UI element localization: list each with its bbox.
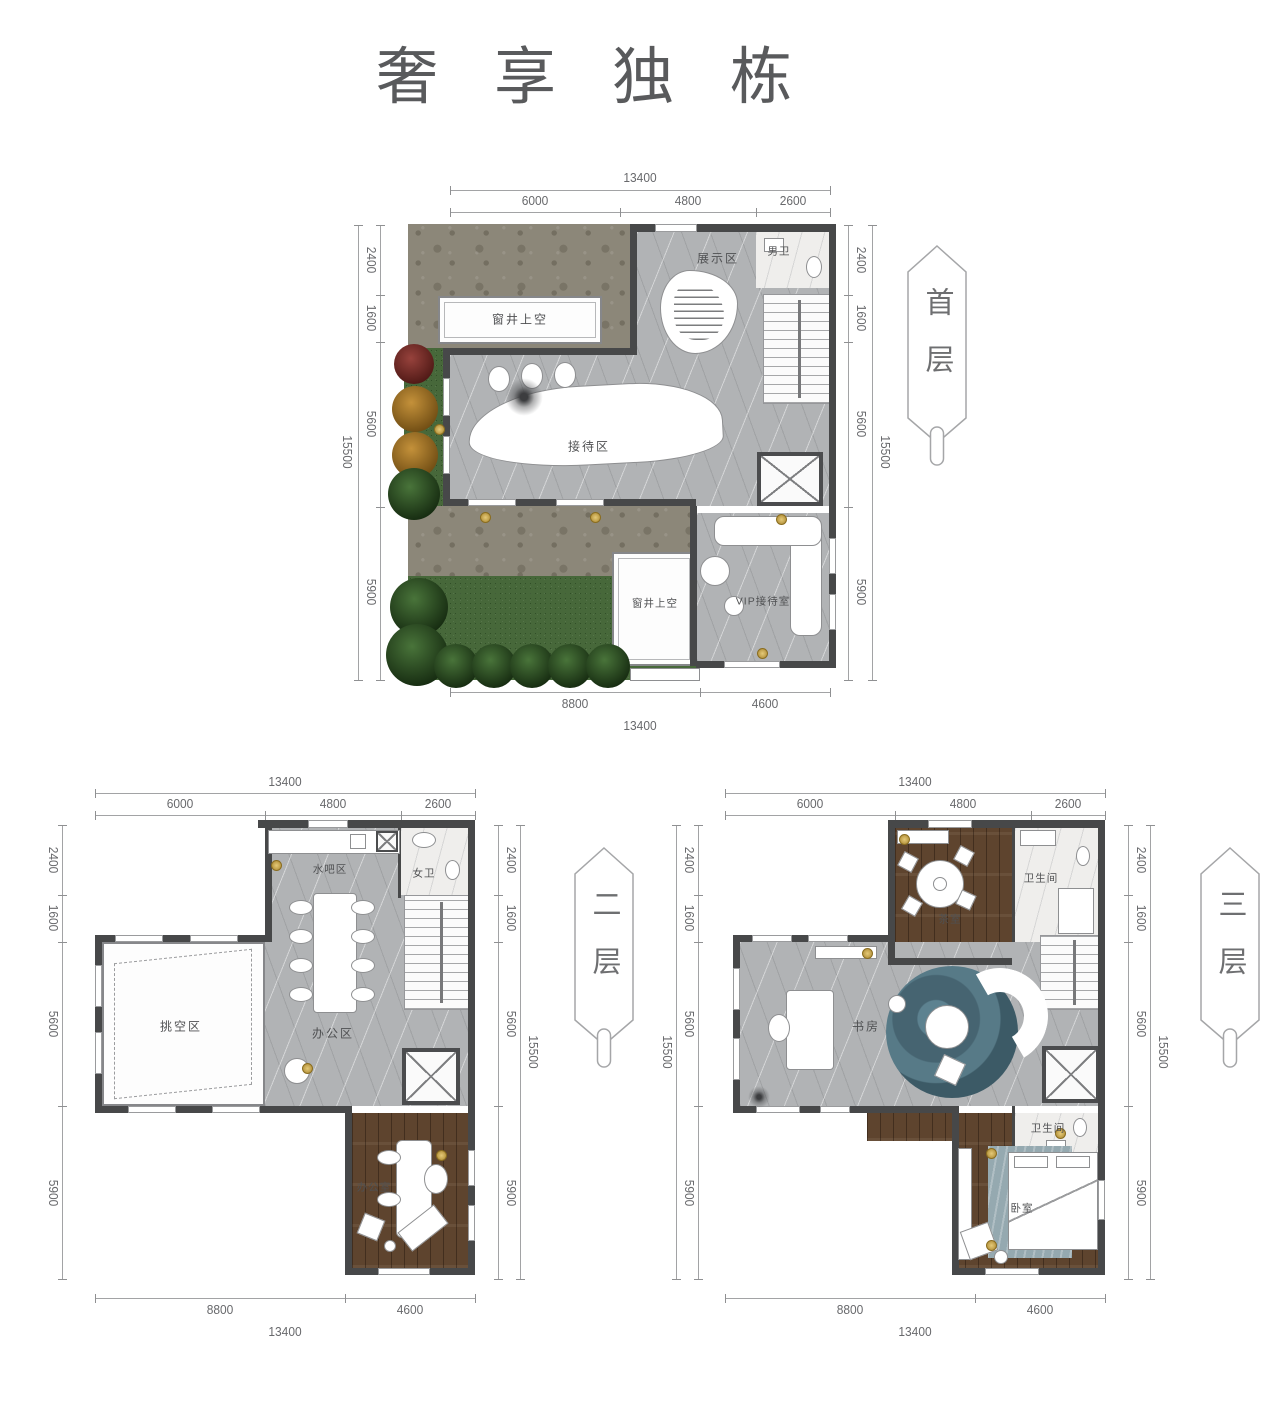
window — [808, 935, 848, 942]
window — [724, 661, 780, 668]
chair — [289, 987, 313, 1002]
dim-label: 2400 — [854, 247, 869, 274]
staircase — [404, 895, 475, 1010]
dim-label: 4600 — [1027, 1302, 1054, 1317]
wall — [630, 224, 637, 355]
dim-label: 5600 — [854, 411, 869, 438]
room-label: 展示区 — [697, 250, 739, 267]
chair — [289, 929, 313, 944]
dim-label: 13400 — [623, 718, 656, 733]
wall — [888, 958, 1012, 965]
room-label: 女卫 — [413, 866, 436, 881]
dim-line — [380, 225, 381, 680]
dim-line — [95, 815, 475, 816]
dim-line — [698, 825, 699, 1279]
dim-label: 5600 — [682, 1011, 697, 1038]
room-label: 水吧区 — [313, 862, 348, 877]
tree — [388, 468, 440, 520]
window — [928, 820, 972, 828]
dim-label: 13400 — [898, 774, 931, 789]
sink — [412, 832, 436, 848]
stool — [384, 1240, 396, 1252]
chair — [351, 929, 375, 944]
dim-line — [725, 815, 1105, 816]
dim-line — [848, 225, 849, 680]
sink — [350, 834, 366, 849]
room-label: 男卫 — [768, 244, 791, 259]
dim-line — [676, 825, 677, 1279]
wall — [829, 506, 836, 668]
dim-label: 2400 — [504, 847, 519, 874]
dim-label: 15500 — [526, 1035, 541, 1068]
dim-label: 8800 — [562, 696, 589, 711]
window — [733, 1038, 740, 1080]
dim-label: 4800 — [675, 193, 702, 208]
window — [829, 594, 836, 630]
chair — [351, 958, 375, 973]
dim-label: 1600 — [504, 905, 519, 932]
side-table — [888, 995, 906, 1013]
chair — [289, 958, 313, 973]
dim-label: 1600 — [854, 305, 869, 332]
room-label: 卧室 — [1011, 1201, 1034, 1216]
partition — [1012, 820, 1015, 942]
bush — [586, 644, 630, 688]
window — [468, 499, 516, 506]
elevator — [1042, 1046, 1100, 1103]
dim-line — [725, 1298, 1105, 1299]
wall — [345, 1106, 352, 1275]
plant — [748, 1086, 770, 1108]
dim-label: 15500 — [340, 435, 355, 468]
fixture-marker — [590, 512, 601, 523]
window — [468, 1205, 475, 1241]
dim-line — [95, 793, 475, 794]
dim-label: 13400 — [898, 1324, 931, 1339]
dim-line — [498, 825, 499, 1279]
dim-label: 5900 — [682, 1180, 697, 1207]
dim-label: 13400 — [623, 170, 656, 185]
tree — [394, 344, 434, 384]
dim-label: 2600 — [780, 193, 807, 208]
dim-label: 2400 — [1134, 847, 1149, 874]
window — [443, 436, 450, 474]
dim-label: 4800 — [950, 796, 977, 811]
room-label: 卫生间 — [1031, 1121, 1066, 1136]
fixture-marker — [436, 1150, 447, 1161]
side-table — [700, 556, 730, 586]
dim-label: 8800 — [207, 1302, 234, 1317]
dim-label: 4600 — [752, 696, 779, 711]
dim-line — [450, 212, 830, 213]
dim-label: 5600 — [364, 411, 379, 438]
dim-label: 13400 — [268, 774, 301, 789]
dim-label: 6000 — [167, 796, 194, 811]
room-label: VIP接待室 — [736, 594, 790, 609]
window — [95, 965, 102, 1007]
dim-label: 2600 — [425, 796, 452, 811]
room-label: 挑空区 — [160, 1018, 202, 1035]
shower — [1058, 888, 1094, 934]
window — [128, 1106, 176, 1113]
fixture-marker — [757, 648, 768, 659]
window — [829, 538, 836, 574]
office-chair — [768, 1014, 790, 1042]
window — [985, 1268, 1039, 1275]
dim-label: 1600 — [46, 905, 61, 932]
fixture-marker — [986, 1148, 997, 1159]
room-label: 窗井上空 — [632, 596, 678, 611]
dim-label: 2400 — [364, 247, 379, 274]
fixture-marker — [271, 860, 282, 871]
dim-label: 5600 — [1134, 1011, 1149, 1038]
tree — [392, 386, 438, 432]
dim-label: 15500 — [878, 435, 893, 468]
dim-label: 15500 — [660, 1035, 675, 1068]
dim-label: 13400 — [268, 1324, 301, 1339]
dim-label: 4800 — [320, 796, 347, 811]
dim-line — [450, 692, 830, 693]
desk-plant — [505, 378, 543, 416]
cooktop — [376, 831, 398, 852]
chair — [289, 900, 313, 915]
floor-banner-label: 首层 — [905, 263, 969, 424]
fixture-marker — [480, 512, 491, 523]
round-table — [925, 1005, 969, 1049]
dim-label: 8800 — [837, 1302, 864, 1317]
dim-label: 15500 — [1156, 1035, 1171, 1068]
dim-line — [872, 225, 873, 680]
toilet — [445, 860, 460, 880]
window — [752, 935, 792, 942]
room-label: 书房 — [852, 1018, 880, 1035]
window — [468, 1150, 475, 1186]
corridor-floor — [867, 1113, 952, 1141]
wall — [95, 935, 102, 1113]
window — [308, 820, 348, 828]
fixture-marker — [862, 948, 873, 959]
dim-label: 1600 — [682, 905, 697, 932]
staircase — [1040, 935, 1105, 1010]
dim-label: 5900 — [1134, 1180, 1149, 1207]
dim-line — [1128, 825, 1129, 1279]
dim-label: 1600 — [1134, 905, 1149, 932]
toilet — [1073, 1118, 1087, 1137]
dim-label: 5900 — [46, 1180, 61, 1207]
stair-rail — [440, 902, 443, 1004]
window — [378, 1268, 430, 1275]
elevator — [757, 452, 823, 506]
office-chair — [424, 1164, 448, 1194]
chair — [351, 987, 375, 1002]
floor-banner: 三层 — [1198, 845, 1262, 1070]
fixture-marker — [434, 424, 445, 435]
dim-label: 2400 — [46, 847, 61, 874]
dim-line — [95, 1298, 475, 1299]
toilet — [806, 256, 822, 278]
dim-line — [520, 825, 521, 1279]
fixture-marker — [899, 834, 910, 845]
window — [115, 935, 163, 942]
chair — [351, 900, 375, 915]
entry-steps — [630, 668, 700, 681]
dim-line — [725, 793, 1105, 794]
dim-label: 6000 — [522, 193, 549, 208]
stool — [554, 362, 576, 388]
dim-label: 5900 — [854, 579, 869, 606]
staircase — [763, 294, 833, 404]
fixture-marker — [986, 1240, 997, 1251]
room-label: 办公室 — [357, 1180, 392, 1195]
dim-label: 1600 — [364, 305, 379, 332]
window — [655, 224, 697, 232]
wall — [443, 348, 636, 355]
dim-line — [358, 225, 359, 680]
dim-label: 2600 — [1055, 796, 1082, 811]
room-label: 接待区 — [568, 438, 610, 455]
dim-line — [1150, 825, 1151, 1279]
fixture-marker — [302, 1063, 313, 1074]
pillow — [1056, 1156, 1090, 1168]
floorplan-sheet: 奢享独栋 13400 6000 4800 2600 15500 2400 160… — [0, 0, 1280, 1406]
dim-label: 5900 — [504, 1180, 519, 1207]
page-title: 奢享独栋 — [0, 26, 1252, 116]
elevator — [402, 1048, 460, 1105]
room-label: 茶室 — [939, 912, 962, 927]
window — [733, 968, 740, 1010]
room-label: 办公区 — [312, 1025, 354, 1042]
guest-chair — [377, 1150, 401, 1165]
floor-banner: 二层 — [572, 845, 636, 1070]
study-desk — [786, 990, 834, 1070]
wall — [888, 820, 1105, 828]
wall — [733, 935, 740, 1113]
window — [556, 499, 604, 506]
fixture-marker — [776, 514, 787, 525]
dim-label: 5900 — [364, 579, 379, 606]
dim-label: 2400 — [682, 847, 697, 874]
wall — [258, 820, 475, 828]
stair-rail — [1073, 940, 1076, 1006]
window — [1098, 1180, 1105, 1220]
dim-line — [450, 190, 830, 191]
window — [95, 1032, 102, 1074]
window — [190, 935, 238, 942]
stool — [994, 1250, 1008, 1264]
dim-label: 5600 — [504, 1011, 519, 1038]
tea-table-center — [933, 877, 947, 891]
pillow — [1014, 1156, 1048, 1168]
dim-label: 6000 — [797, 796, 824, 811]
wall — [829, 224, 836, 506]
vip-sofa — [714, 516, 822, 546]
toilet — [1076, 846, 1090, 866]
dim-line — [62, 825, 63, 1279]
floor-banner-label: 二层 — [572, 865, 636, 1026]
room-label: 窗井上空 — [492, 311, 548, 328]
dim-label: 5600 — [46, 1011, 61, 1038]
dim-label: 4600 — [397, 1302, 424, 1317]
room-label: 卫生间 — [1024, 871, 1059, 886]
window — [212, 1106, 260, 1113]
floor-banner-label: 三层 — [1198, 865, 1262, 1026]
vanity — [1020, 830, 1056, 846]
window — [820, 1106, 850, 1113]
stair-rail — [798, 300, 801, 397]
floor-banner: 首层 — [905, 243, 969, 468]
window — [443, 378, 450, 416]
wall — [690, 506, 697, 666]
